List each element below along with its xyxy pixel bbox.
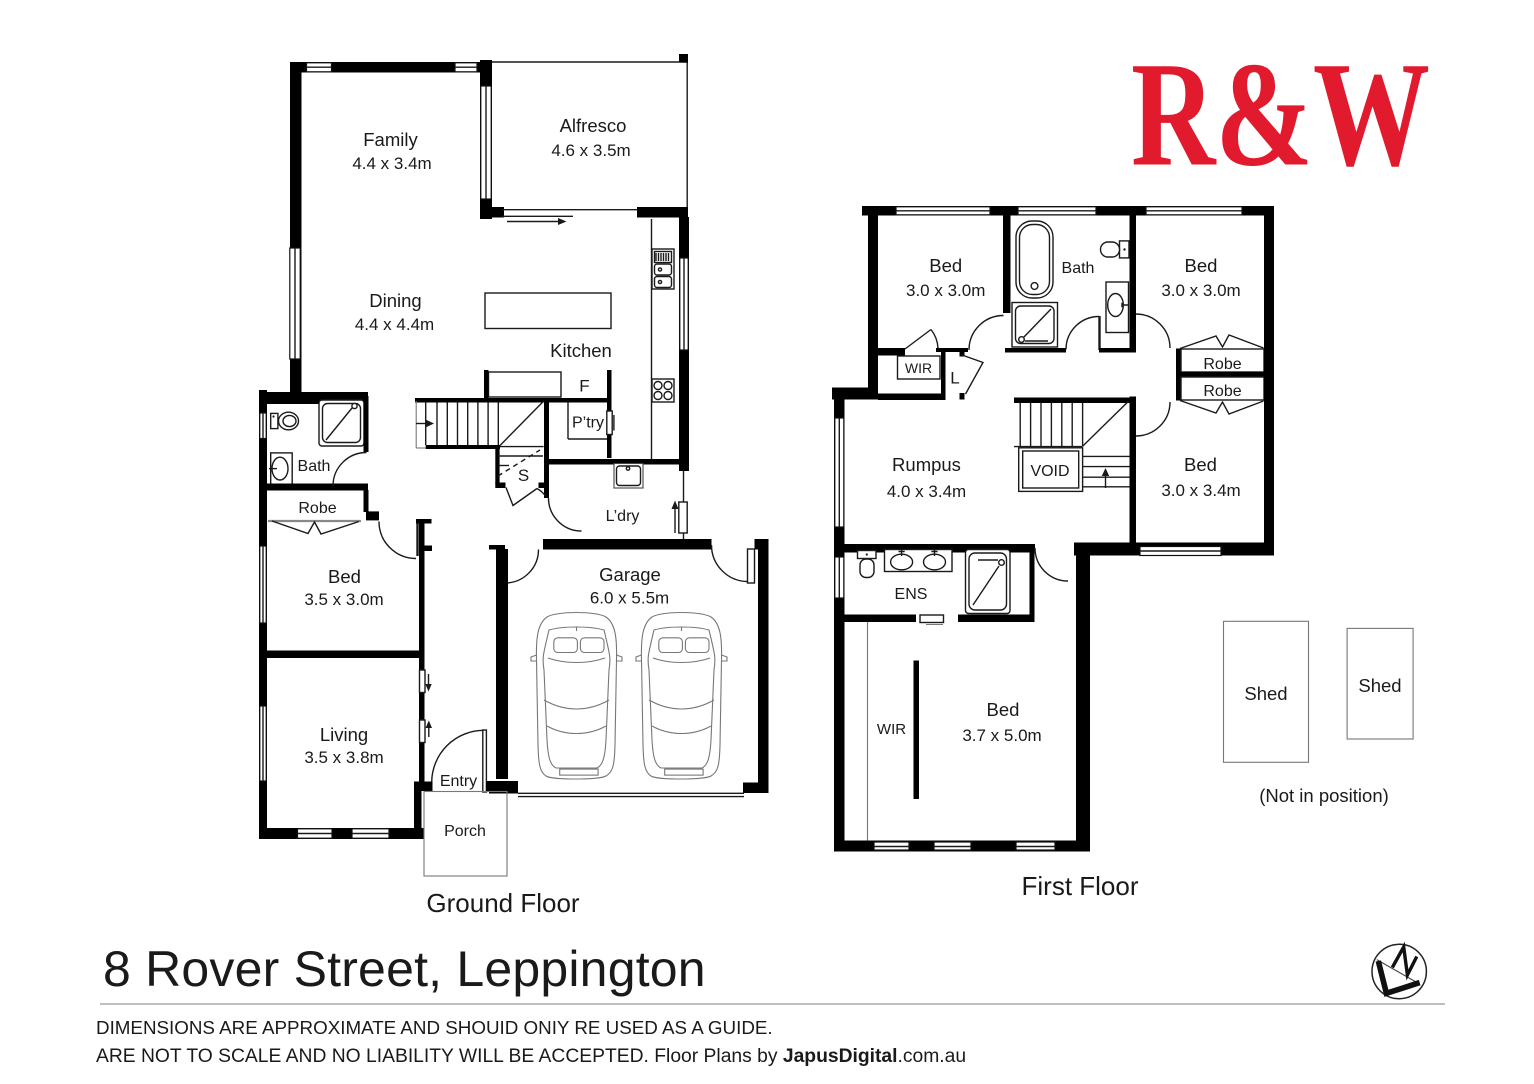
- svg-text:P’try: P’try: [572, 415, 604, 432]
- svg-text:Bed: Bed: [929, 255, 962, 276]
- svg-text:Garage: Garage: [599, 564, 661, 585]
- svg-text:4.4 x 4.4m: 4.4 x 4.4m: [355, 315, 434, 334]
- svg-text:Bed: Bed: [1185, 255, 1218, 276]
- svg-text:3.5 x 3.8m: 3.5 x 3.8m: [304, 748, 383, 767]
- svg-text:4.4 x 3.4m: 4.4 x 3.4m: [352, 154, 431, 173]
- svg-text:Bath: Bath: [1062, 260, 1095, 277]
- svg-text:Ground Floor: Ground Floor: [426, 888, 580, 918]
- svg-text:Rumpus: Rumpus: [892, 454, 961, 475]
- svg-text:6.0 x 5.5m: 6.0 x 5.5m: [590, 589, 669, 608]
- svg-text:Alfresco: Alfresco: [560, 115, 627, 136]
- svg-text:4.0 x 3.4m: 4.0 x 3.4m: [887, 482, 966, 501]
- svg-text:WIR: WIR: [905, 360, 932, 376]
- svg-text:S: S: [518, 466, 529, 485]
- svg-text:Robe: Robe: [1203, 356, 1241, 373]
- svg-text:ENS: ENS: [895, 586, 928, 603]
- svg-text:L: L: [950, 369, 959, 388]
- svg-text:3.5 x 3.0m: 3.5 x 3.0m: [304, 590, 383, 609]
- svg-text:3.7 x 5.0m: 3.7 x 5.0m: [962, 726, 1041, 745]
- svg-text:Shed: Shed: [1358, 675, 1401, 696]
- svg-text:Porch: Porch: [444, 823, 486, 840]
- svg-text:Living: Living: [320, 724, 368, 745]
- svg-text:Dining: Dining: [369, 290, 421, 311]
- svg-text:Shed: Shed: [1244, 683, 1287, 704]
- svg-text:ARE NOT TO SCALE AND NO LIABIL: ARE NOT TO SCALE AND NO LIABILITY WILL B…: [96, 1046, 966, 1067]
- svg-text:3.0 x 3.0m: 3.0 x 3.0m: [1161, 281, 1240, 300]
- svg-text:Bed: Bed: [328, 566, 361, 587]
- svg-text:DIMENSIONS ARE APPROXIMATE AND: DIMENSIONS ARE APPROXIMATE AND SHOUID ON…: [96, 1017, 773, 1038]
- svg-text:F: F: [579, 377, 589, 396]
- svg-text:Bed: Bed: [987, 699, 1020, 720]
- svg-text:Robe: Robe: [298, 500, 336, 517]
- svg-text:WIR: WIR: [877, 721, 906, 738]
- svg-text:Kitchen: Kitchen: [550, 340, 612, 361]
- svg-text:Robe: Robe: [1203, 383, 1241, 400]
- svg-text:L’dry: L’dry: [606, 508, 640, 525]
- svg-text:Entry: Entry: [440, 773, 477, 790]
- svg-text:8 Rover Street, Leppington: 8 Rover Street, Leppington: [103, 941, 706, 997]
- svg-text:3.0 x 3.0m: 3.0 x 3.0m: [906, 281, 985, 300]
- svg-text:4.6 x 3.5m: 4.6 x 3.5m: [551, 141, 630, 160]
- svg-text:(Not in position): (Not in position): [1259, 785, 1389, 806]
- svg-text:First Floor: First Floor: [1022, 871, 1139, 901]
- svg-text:Bath: Bath: [298, 458, 331, 475]
- svg-text:Family: Family: [363, 129, 418, 150]
- svg-text:3.0 x 3.4m: 3.0 x 3.4m: [1161, 481, 1240, 500]
- svg-text:Bed: Bed: [1184, 454, 1217, 475]
- svg-text:R&W: R&W: [1131, 32, 1430, 198]
- svg-text:VOID: VOID: [1030, 463, 1069, 480]
